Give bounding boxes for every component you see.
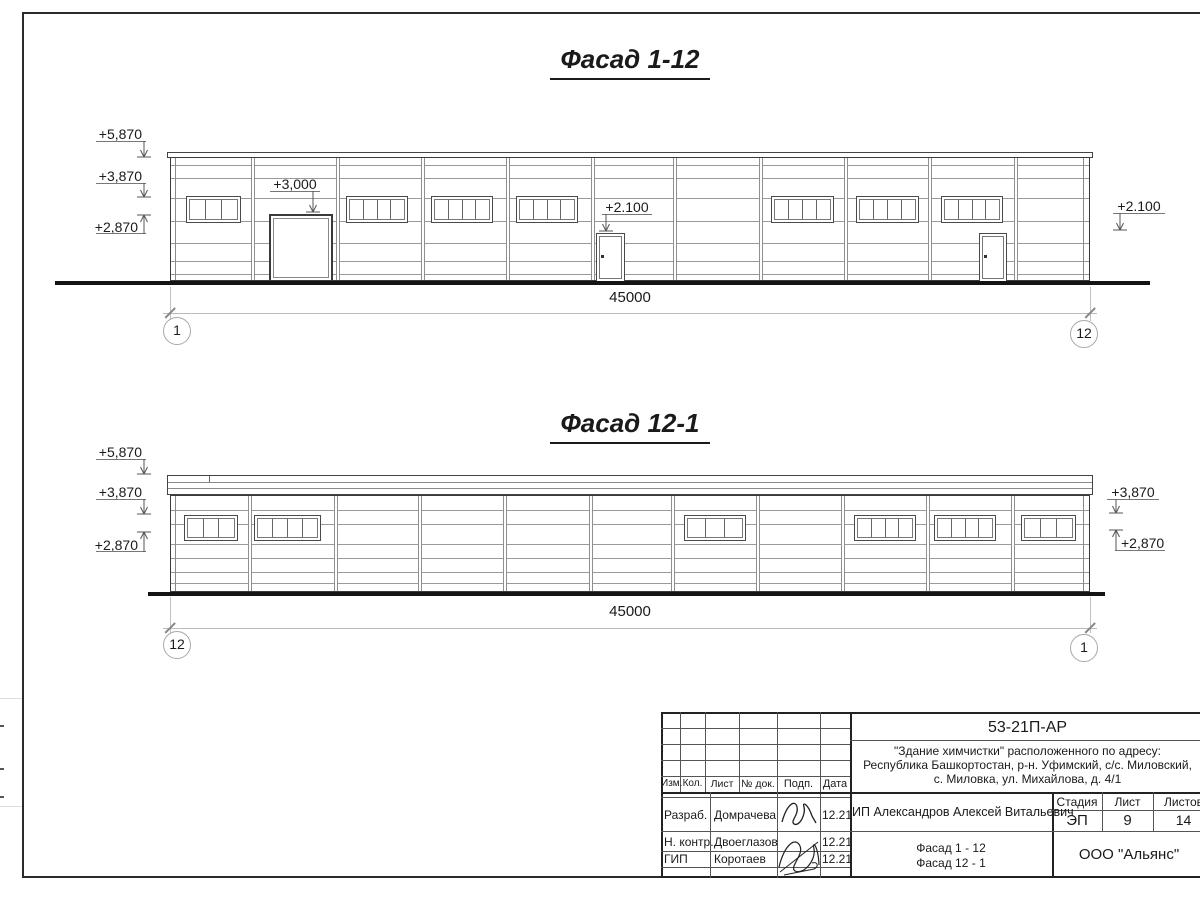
dimension-line <box>163 313 1097 314</box>
axis-bubble-1: 1 <box>1070 634 1098 662</box>
window-pane <box>706 519 724 537</box>
ribbon-window <box>941 196 1003 223</box>
signer-name: Двоеглазов <box>714 835 778 849</box>
window-pane <box>534 200 548 219</box>
window-pane <box>775 200 789 219</box>
ground-line <box>148 592 1105 596</box>
window-frame <box>519 199 575 220</box>
window-pane <box>288 519 303 537</box>
project-address-line2: Республика Башкортостан, р-н. Уфимский, … <box>850 758 1200 772</box>
sheet-label: Лист <box>1102 795 1153 809</box>
window-frame <box>859 199 916 220</box>
panel-joint <box>1011 496 1015 591</box>
col-ndok: № док. <box>739 778 777 790</box>
window-pane <box>945 200 959 219</box>
ribbon-window <box>684 515 746 541</box>
wall-edge-line <box>175 496 176 591</box>
window-pane <box>986 200 999 219</box>
window-frame <box>687 518 743 538</box>
window-pane <box>902 200 915 219</box>
window-pane <box>973 200 987 219</box>
siding-line <box>171 510 1089 511</box>
elevation-mark-label: +3,870 <box>92 168 142 184</box>
window-pane <box>561 200 574 219</box>
window-frame <box>944 199 1000 220</box>
window-pane <box>204 519 220 537</box>
extension-line <box>170 287 171 321</box>
margin-line <box>0 698 22 699</box>
panel-joint <box>928 158 932 280</box>
signer-name: Домрачева <box>714 808 776 822</box>
siding-line <box>171 558 1089 559</box>
signer-date: 12.21 <box>822 808 852 822</box>
elevation-mark-label: +3,870 <box>92 484 142 500</box>
siding-line <box>171 544 1089 545</box>
elevation-mark-label: +2.100 <box>1114 198 1164 214</box>
window-pane <box>966 519 980 537</box>
window-pane <box>303 519 317 537</box>
margin-mark <box>0 796 4 798</box>
window-pane <box>350 200 364 219</box>
ribbon-window <box>934 515 996 541</box>
panel-joint <box>671 496 675 591</box>
stage-label: Стадия <box>1052 795 1102 809</box>
panel-joint <box>506 158 510 280</box>
elevation-mark-label: +2,870 <box>1121 535 1171 551</box>
door-leaf <box>982 236 1004 279</box>
elevation-mark-arrow-icon <box>136 183 152 198</box>
window-pane <box>979 519 992 537</box>
window-frame <box>349 199 405 220</box>
axis-bubble-12: 12 <box>163 631 191 659</box>
window-pane <box>435 200 449 219</box>
siding-line <box>171 583 1089 584</box>
ribbon-window <box>186 196 241 223</box>
stage-value: ЭП <box>1052 812 1102 829</box>
window-pane <box>888 200 902 219</box>
window-pane <box>1057 519 1072 537</box>
parapet-line <box>168 482 1092 483</box>
siding-line <box>171 165 1089 166</box>
window-pane <box>378 200 392 219</box>
window-pane <box>899 519 912 537</box>
window-pane <box>817 200 830 219</box>
title-block: Изм. Кол. Лист № док. Подп. Дата Разраб.… <box>661 712 1200 878</box>
door-handle <box>984 255 987 258</box>
sheet-value: 9 <box>1102 812 1153 829</box>
elevation-mark-label: +5,870 <box>92 126 142 142</box>
panel-joint <box>841 496 845 591</box>
elevation-mark-label: +3,000 <box>268 176 322 192</box>
window-pane <box>364 200 378 219</box>
sheets-value: 14 <box>1153 812 1200 828</box>
ground-line <box>55 281 1150 285</box>
window-frame <box>774 199 831 220</box>
project-address-line3: с. Миловка, ул. Михайлова, д. 4/1 <box>850 772 1200 786</box>
window-pane <box>219 519 234 537</box>
window-pane <box>874 200 888 219</box>
elevation-mark-arrow-icon <box>136 531 152 552</box>
window-pane <box>959 200 973 219</box>
window-pane <box>222 200 237 219</box>
panel-joint <box>421 158 425 280</box>
extension-line <box>1090 287 1091 321</box>
signer-role: Н. контр. <box>664 835 714 849</box>
window-pane <box>886 519 900 537</box>
dimension-line <box>163 628 1097 629</box>
elevation-mark-label: +2.100 <box>602 199 652 215</box>
window-frame <box>257 518 318 538</box>
siding-line <box>171 572 1089 573</box>
signature-domracheva <box>779 796 819 830</box>
frame-top-line <box>22 12 1200 14</box>
window-pane <box>463 200 477 219</box>
window-pane <box>938 519 952 537</box>
window-pane <box>872 519 886 537</box>
project-address-line1: "Здание химчистки" расположенного по адр… <box>850 744 1200 758</box>
entrance-door <box>596 233 625 282</box>
panel-joint <box>251 158 255 280</box>
facade-12-1-title-text: Фасад 12-1 <box>550 408 709 444</box>
facade-1-12-title-text: Фасад 1-12 <box>550 44 709 80</box>
elevation-mark-arrow-icon <box>305 191 321 213</box>
margin-line <box>0 806 22 807</box>
window-pane <box>520 200 534 219</box>
ribbon-window <box>184 515 238 541</box>
dimension-value: 45000 <box>480 603 780 620</box>
panel-joint <box>503 496 507 591</box>
panel-joint <box>759 158 763 280</box>
window-frame <box>434 199 490 220</box>
parapet-line <box>168 488 1092 489</box>
col-kol: Кол. <box>680 778 705 789</box>
window-frame <box>187 518 235 538</box>
panel-joint <box>756 496 760 591</box>
window-pane <box>273 519 288 537</box>
panel-joint <box>1014 158 1018 280</box>
drawing-sheet: Фасад 1-12 45000 1 12 Фасад 12-1 45000 1… <box>0 0 1200 900</box>
door-leaf <box>599 236 622 279</box>
window-pane <box>190 200 206 219</box>
elevation-mark-label: +5,870 <box>92 444 142 460</box>
signer-role: ГИП <box>664 852 688 866</box>
signature-dvoeglazov-korotaev <box>774 835 821 877</box>
panel-joint <box>334 496 338 591</box>
margin-mark <box>0 725 4 727</box>
window-pane <box>449 200 463 219</box>
ribbon-window <box>1021 515 1076 541</box>
window-frame <box>1024 518 1073 538</box>
ribbon-window <box>516 196 578 223</box>
ribbon-window <box>771 196 834 223</box>
company-name: ООО "Альянс" <box>1053 846 1200 863</box>
window-frame <box>857 518 913 538</box>
elevation-mark-arrow-icon <box>136 499 152 515</box>
signer-role: Разраб. <box>664 808 707 822</box>
panel-joint <box>248 496 252 591</box>
window-pane <box>391 200 404 219</box>
elevation-mark-arrow-icon <box>136 214 152 234</box>
window-pane <box>858 519 872 537</box>
window-frame <box>189 199 238 220</box>
elevation-mark-arrow-icon <box>136 459 152 475</box>
dimension-value: 45000 <box>480 289 780 306</box>
elevation-mark-label: +3,870 <box>1108 484 1158 500</box>
axis-bubble-12: 12 <box>1070 320 1098 348</box>
elevation-mark-arrow-icon <box>136 141 152 158</box>
window-pane <box>548 200 562 219</box>
margin-mark <box>0 768 4 770</box>
col-izm: Изм. <box>661 778 680 789</box>
elevation-mark-arrow-icon <box>598 214 614 232</box>
gate-leaf <box>273 218 329 278</box>
wall-edge-line <box>1083 496 1084 591</box>
panel-joint <box>844 158 848 280</box>
col-podp: Подп. <box>777 778 820 790</box>
window-pane <box>725 519 742 537</box>
panel-joint <box>926 496 930 591</box>
sheet-content-line1: Фасад 1 - 12 <box>850 841 1052 855</box>
axis-bubble-1: 1 <box>163 317 191 345</box>
signer-date: 12.21 <box>822 852 852 866</box>
window-pane <box>952 519 966 537</box>
ribbon-window <box>856 196 919 223</box>
window-pane <box>860 200 874 219</box>
facade-1-12-title: Фасад 1-12 <box>400 44 860 80</box>
ribbon-window <box>346 196 408 223</box>
doc-number: 53-21П-АР <box>850 719 1200 737</box>
window-pane <box>188 519 204 537</box>
panel-joint <box>418 496 422 591</box>
panel-joint <box>589 496 593 591</box>
panel-joint <box>591 158 595 280</box>
facade-12-1-title: Фасад 12-1 <box>400 408 860 444</box>
wall-edge-line <box>1083 158 1084 280</box>
ribbon-window <box>431 196 493 223</box>
facade-wall-12-1 <box>170 495 1090 592</box>
ribbon-window <box>254 515 321 541</box>
col-list: Лист <box>705 778 739 790</box>
entrance-door <box>979 233 1007 282</box>
facade-parapet-band <box>167 475 1093 495</box>
wall-edge-line <box>175 158 176 280</box>
window-pane <box>688 519 706 537</box>
sheets-label: Листов <box>1153 795 1200 809</box>
col-data: Дата <box>820 778 850 790</box>
signer-name: Коротаев <box>714 852 766 866</box>
elevation-mark-arrow-icon <box>1112 213 1128 231</box>
window-pane <box>206 200 222 219</box>
window-frame <box>937 518 993 538</box>
door-handle <box>601 255 604 258</box>
window-pane <box>1041 519 1057 537</box>
window-pane <box>1025 519 1041 537</box>
client-name: ИП Александров Алексей Витальевич <box>852 805 1052 819</box>
gate-door <box>269 214 333 282</box>
sheet-content-line2: Фасад 12 - 1 <box>850 856 1052 870</box>
frame-left-line <box>22 12 24 878</box>
ribbon-window <box>854 515 916 541</box>
window-pane <box>258 519 273 537</box>
panel-joint <box>336 158 340 280</box>
parapet-joint-tick <box>209 476 210 482</box>
panel-joint <box>673 158 677 280</box>
elevation-mark-arrow-icon <box>1108 499 1124 514</box>
window-pane <box>789 200 803 219</box>
signer-date: 12.21 <box>822 835 852 849</box>
window-pane <box>476 200 489 219</box>
elevation-mark-arrow-icon <box>1108 529 1124 551</box>
window-pane <box>803 200 817 219</box>
